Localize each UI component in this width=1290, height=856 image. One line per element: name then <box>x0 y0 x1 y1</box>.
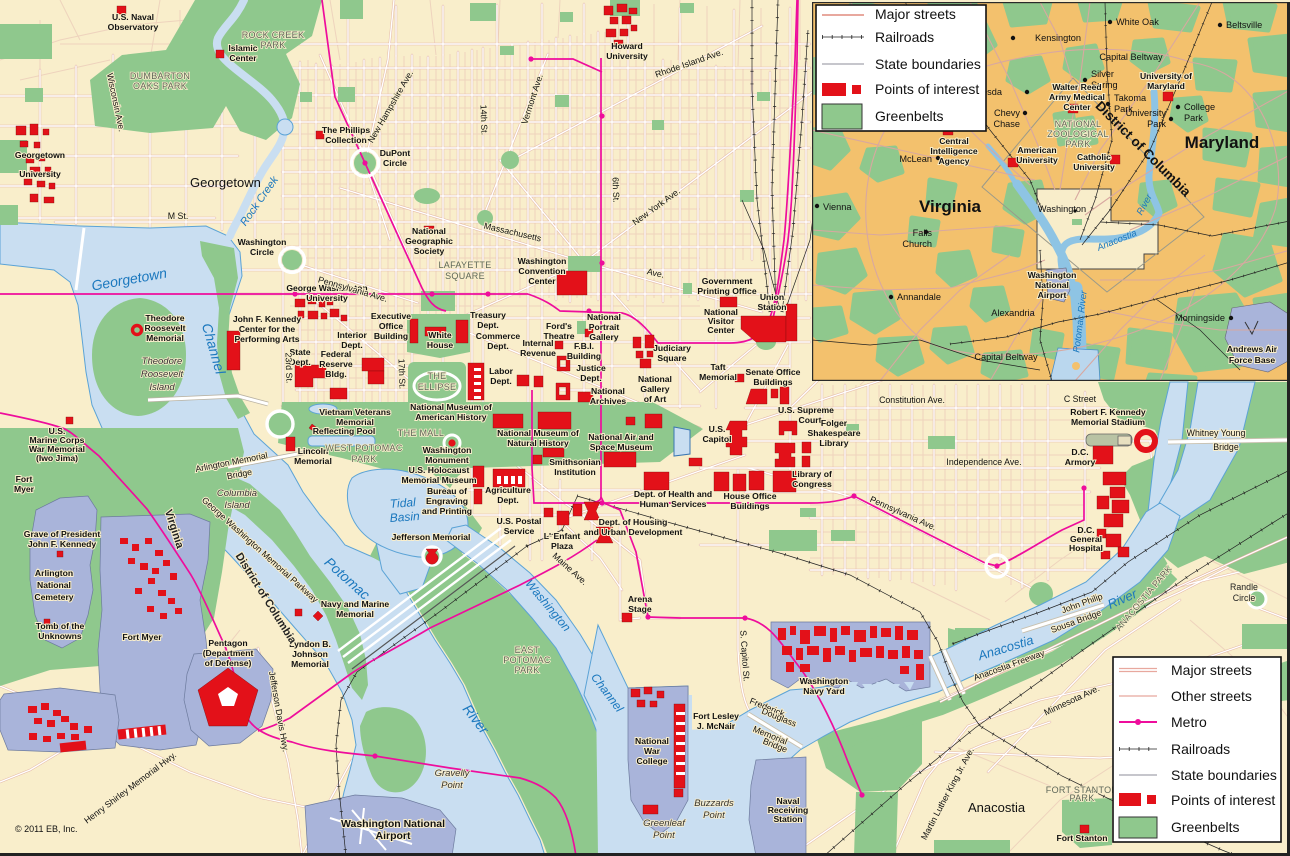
svg-text:Circle: Circle <box>1233 593 1256 603</box>
svg-text:Collection: Collection <box>325 135 367 145</box>
svg-text:Memorial Stadium: Memorial Stadium <box>1071 417 1145 427</box>
svg-text:Library of: Library of <box>792 469 832 479</box>
svg-text:Shakespeare: Shakespeare <box>807 428 860 438</box>
svg-text:Robert F. Kennedy: Robert F. Kennedy <box>1070 407 1146 417</box>
svg-text:of Art: of Art <box>644 394 667 404</box>
svg-text:Observatory: Observatory <box>108 22 159 32</box>
svg-text:Greenbelts: Greenbelts <box>1171 819 1239 835</box>
svg-text:Army Medical: Army Medical <box>1049 92 1105 102</box>
svg-text:Unknowns: Unknowns <box>38 631 82 641</box>
svg-text:Major streets: Major streets <box>875 6 956 22</box>
svg-text:Memorial: Memorial <box>291 659 329 669</box>
svg-text:Memorial: Memorial <box>699 372 737 382</box>
svg-text:Greenleaf: Greenleaf <box>643 818 686 829</box>
svg-text:Maryland: Maryland <box>1147 81 1185 91</box>
svg-text:Force Base: Force Base <box>1229 355 1276 365</box>
svg-text:Basin: Basin <box>389 509 420 525</box>
svg-text:Silver: Silver <box>1091 69 1114 79</box>
svg-text:Memorial: Memorial <box>146 333 184 343</box>
svg-text:University: University <box>19 169 61 179</box>
svg-text:PARK: PARK <box>260 40 285 50</box>
svg-text:Executive: Executive <box>371 311 411 321</box>
svg-text:Reserve: Reserve <box>319 359 353 369</box>
svg-text:and Urban Development: and Urban Development <box>584 527 683 537</box>
svg-text:Other streets: Other streets <box>1171 688 1252 704</box>
svg-text:Kensington: Kensington <box>1035 33 1081 43</box>
svg-text:Memorial: Memorial <box>336 609 374 619</box>
svg-text:Annandale: Annandale <box>897 292 941 302</box>
svg-text:Washington: Washington <box>1038 204 1086 214</box>
svg-text:Chevy: Chevy <box>994 108 1020 118</box>
svg-text:Buildings: Buildings <box>753 377 792 387</box>
svg-text:Center: Center <box>1063 102 1091 112</box>
svg-text:Washington: Washington <box>800 676 849 686</box>
svg-text:Pentagon: Pentagon <box>208 638 247 648</box>
svg-text:University: University <box>1126 108 1167 118</box>
svg-text:American: American <box>1017 145 1056 155</box>
svg-text:Agriculture: Agriculture <box>485 485 531 495</box>
svg-text:Andrews Air: Andrews Air <box>1227 344 1278 354</box>
svg-text:Memorial: Memorial <box>294 456 332 466</box>
svg-text:PARK: PARK <box>1065 139 1090 149</box>
svg-text:National Museum of: National Museum of <box>497 428 579 438</box>
svg-text:Point: Point <box>703 810 725 821</box>
svg-text:Theatre: Theatre <box>543 331 574 341</box>
svg-text:State boundaries: State boundaries <box>1171 767 1277 783</box>
svg-text:ZOOLOGICAL: ZOOLOGICAL <box>1047 129 1109 139</box>
svg-text:Island: Island <box>149 382 175 393</box>
svg-text:WEST POTOMAC: WEST POTOMAC <box>325 443 402 453</box>
svg-text:Service: Service <box>504 526 535 536</box>
svg-text:Dept.: Dept. <box>497 495 518 505</box>
svg-text:Arlington: Arlington <box>35 568 73 578</box>
svg-text:PARK: PARK <box>514 665 539 675</box>
svg-text:Performing Arts: Performing Arts <box>234 334 299 344</box>
svg-text:Natural History: Natural History <box>507 438 569 448</box>
svg-text:SQUARE: SQUARE <box>445 271 485 281</box>
svg-text:Roosevelt: Roosevelt <box>141 369 184 380</box>
svg-text:The Phillips: The Phillips <box>322 125 370 135</box>
svg-text:U.S. Holocaust: U.S. Holocaust <box>409 465 470 475</box>
svg-text:Building: Building <box>567 351 601 361</box>
svg-text:17th St.: 17th St. <box>396 359 407 390</box>
svg-text:Virginia: Virginia <box>919 197 982 216</box>
svg-text:Dept.: Dept. <box>490 376 511 386</box>
svg-text:Station: Station <box>773 814 802 824</box>
svg-text:National: National <box>37 580 71 590</box>
svg-text:Gallery: Gallery <box>640 384 669 394</box>
svg-text:Space Museum: Space Museum <box>590 442 653 452</box>
svg-text:Labor: Labor <box>489 366 514 376</box>
svg-text:EAST: EAST <box>515 645 540 655</box>
svg-text:Vietnam Veterans: Vietnam Veterans <box>319 407 391 417</box>
svg-text:Park: Park <box>1147 119 1166 129</box>
svg-text:University of: University of <box>1140 71 1192 81</box>
svg-text:Senate Office: Senate Office <box>746 367 801 377</box>
svg-text:Navy Yard: Navy Yard <box>803 686 844 696</box>
svg-text:John F. Kennedy: John F. Kennedy <box>233 314 301 324</box>
svg-text:McLean: McLean <box>899 154 932 164</box>
svg-text:Georgetown: Georgetown <box>190 175 261 190</box>
svg-text:National: National <box>635 736 669 746</box>
svg-text:D.C.: D.C. <box>1071 447 1088 457</box>
svg-text:White Oak: White Oak <box>1116 17 1159 27</box>
svg-text:War: War <box>644 746 661 756</box>
svg-text:National: National <box>638 374 672 384</box>
svg-text:Memorial Museum: Memorial Museum <box>402 475 477 485</box>
svg-text:Court: Court <box>799 415 822 425</box>
svg-text:John F. Kennedy: John F. Kennedy <box>28 539 96 549</box>
svg-text:Portrait: Portrait <box>589 322 620 332</box>
svg-text:Treasury: Treasury <box>470 310 506 320</box>
svg-text:Airport: Airport <box>376 830 412 842</box>
svg-text:Greenbelts: Greenbelts <box>875 108 943 124</box>
svg-text:NATIONAL: NATIONAL <box>1055 119 1102 129</box>
svg-text:Square: Square <box>657 353 686 363</box>
svg-text:Dept.: Dept. <box>487 341 508 351</box>
svg-text:Railroads: Railroads <box>1171 741 1230 757</box>
svg-text:LAFAYETTE: LAFAYETTE <box>438 260 491 270</box>
svg-text:Falls: Falls <box>913 228 933 238</box>
svg-text:Washington: Washington <box>423 445 472 455</box>
svg-text:Building: Building <box>374 331 408 341</box>
svg-text:Independence Ave.: Independence Ave. <box>946 457 1021 467</box>
svg-text:National: National <box>587 312 621 322</box>
svg-text:Fort Stanton: Fort Stanton <box>1056 833 1107 843</box>
svg-text:Catholic: Catholic <box>1077 152 1111 162</box>
svg-text:National Air and: National Air and <box>588 432 654 442</box>
svg-text:THE: THE <box>428 371 447 381</box>
svg-text:Dept. of Housing: Dept. of Housing <box>599 517 668 527</box>
svg-text:College: College <box>636 756 667 766</box>
svg-text:Buzzards: Buzzards <box>694 798 734 809</box>
svg-text:14th St.: 14th St. <box>478 105 489 136</box>
svg-text:Points of interest: Points of interest <box>1171 792 1275 808</box>
svg-text:Archives: Archives <box>590 396 627 406</box>
svg-text:Government: Government <box>702 276 753 286</box>
svg-text:Revenue: Revenue <box>520 348 556 358</box>
svg-text:U.S. Postal: U.S. Postal <box>497 516 542 526</box>
svg-text:OAKS PARK: OAKS PARK <box>133 81 187 91</box>
svg-text:Justice: Justice <box>576 363 606 373</box>
svg-text:National: National <box>1035 280 1069 290</box>
svg-text:Hospital: Hospital <box>1069 543 1103 553</box>
svg-text:Island: Island <box>224 500 250 511</box>
svg-text:House Office: House Office <box>723 491 776 501</box>
svg-text:Capital Beltway: Capital Beltway <box>1099 52 1163 62</box>
svg-text:Washington: Washington <box>518 256 567 266</box>
svg-text:Library: Library <box>819 438 848 448</box>
svg-text:Johnson: Johnson <box>292 649 328 659</box>
svg-text:Fort: Fort <box>16 474 33 484</box>
svg-text:Capitol: Capitol <box>702 434 731 444</box>
svg-text:DUMBARTON: DUMBARTON <box>130 71 190 81</box>
svg-text:White: White <box>428 330 452 340</box>
svg-text:Morningside: Morningside <box>1175 313 1225 323</box>
svg-text:Intelligence: Intelligence <box>930 146 977 156</box>
svg-text:PARK: PARK <box>1069 793 1094 803</box>
svg-text:Church: Church <box>902 239 932 249</box>
svg-text:Metro: Metro <box>1171 714 1207 730</box>
svg-text:POTOMAC: POTOMAC <box>503 655 551 665</box>
svg-text:Geographic: Geographic <box>405 236 453 246</box>
svg-text:Reflecting Pool: Reflecting Pool <box>313 426 376 436</box>
svg-text:Fort Myer: Fort Myer <box>122 632 162 642</box>
svg-text:Smithsonian: Smithsonian <box>549 457 601 467</box>
svg-text:© 2011 EB, Inc.: © 2011 EB, Inc. <box>15 824 78 834</box>
svg-text:Point: Point <box>441 780 463 791</box>
svg-text:J. McNair: J. McNair <box>697 721 736 731</box>
svg-text:Columbia: Columbia <box>217 488 257 499</box>
svg-text:U.S.: U.S. <box>709 424 726 434</box>
svg-text:Gravelly: Gravelly <box>435 768 471 779</box>
svg-text:Ford's: Ford's <box>546 321 572 331</box>
svg-text:College: College <box>1184 102 1215 112</box>
svg-text:Beltsville: Beltsville <box>1226 20 1262 30</box>
svg-text:Islamic: Islamic <box>228 43 257 53</box>
svg-text:Commerce: Commerce <box>476 331 521 341</box>
svg-text:Engraving: Engraving <box>426 496 468 506</box>
svg-text:Washington: Washington <box>1028 270 1077 280</box>
svg-text:Bridge: Bridge <box>1213 442 1239 452</box>
svg-text:Myer: Myer <box>14 484 35 494</box>
svg-text:Whitney Young: Whitney Young <box>1187 428 1246 438</box>
svg-text:Capital Beltway: Capital Beltway <box>974 352 1038 362</box>
svg-text:DuPont: DuPont <box>380 148 411 158</box>
svg-text:23rd St.: 23rd St. <box>283 352 294 383</box>
svg-text:Center: Center <box>707 325 735 335</box>
svg-text:Howard: Howard <box>611 41 643 51</box>
svg-text:Vienna: Vienna <box>823 202 852 212</box>
svg-text:THE MALL: THE MALL <box>398 428 444 438</box>
svg-text:Maryland: Maryland <box>1185 133 1260 152</box>
svg-text:Lincoln: Lincoln <box>298 446 329 456</box>
svg-text:6th St.: 6th St. <box>611 177 622 203</box>
svg-text:Agency: Agency <box>938 156 969 166</box>
svg-text:Monument: Monument <box>425 455 469 465</box>
svg-text:Office: Office <box>379 321 404 331</box>
svg-text:Takoma: Takoma <box>1114 93 1147 103</box>
svg-text:of Defense): of Defense) <box>205 658 252 668</box>
svg-text:Printing Office: Printing Office <box>697 286 756 296</box>
svg-text:Airport: Airport <box>1038 290 1067 300</box>
svg-text:State boundaries: State boundaries <box>875 56 981 72</box>
svg-text:University: University <box>1016 155 1058 165</box>
svg-text:Buildings: Buildings <box>730 501 769 511</box>
svg-text:Society: Society <box>414 246 445 256</box>
svg-text:Interior: Interior <box>337 330 367 340</box>
svg-text:Circle: Circle <box>383 158 407 168</box>
svg-text:Dept.: Dept. <box>477 320 498 330</box>
svg-text:Theodore: Theodore <box>145 313 184 323</box>
svg-text:University: University <box>606 51 648 61</box>
svg-text:Jefferson Memorial: Jefferson Memorial <box>392 532 471 542</box>
svg-text:Union: Union <box>760 292 784 302</box>
svg-text:ROCK CREEK: ROCK CREEK <box>242 30 305 40</box>
svg-text:Arena: Arena <box>628 594 653 604</box>
svg-text:Station: Station <box>757 302 786 312</box>
svg-text:U.S. Supreme: U.S. Supreme <box>778 405 834 415</box>
svg-text:American History: American History <box>415 412 486 422</box>
svg-text:Congress: Congress <box>792 479 832 489</box>
svg-text:Folger: Folger <box>821 418 848 428</box>
svg-text:Railroads: Railroads <box>875 29 934 45</box>
svg-text:National: National <box>591 386 625 396</box>
svg-text:Navy and Marine: Navy and Marine <box>321 599 390 609</box>
svg-text:and Printing: and Printing <box>422 506 472 516</box>
svg-text:Washington: Washington <box>238 237 287 247</box>
svg-text:Circle: Circle <box>250 247 274 257</box>
svg-text:U.S. Naval: U.S. Naval <box>112 12 154 22</box>
svg-text:Alexandria: Alexandria <box>991 308 1035 318</box>
svg-text:ELLIPSE: ELLIPSE <box>418 382 457 392</box>
svg-text:Fort Lesley: Fort Lesley <box>693 711 739 721</box>
svg-text:Center for the: Center for the <box>239 324 296 334</box>
svg-text:L' Enfant: L' Enfant <box>544 531 581 541</box>
svg-text:Roosevelt: Roosevelt <box>144 323 185 333</box>
svg-text:Armory: Armory <box>1065 457 1096 467</box>
svg-text:Center: Center <box>528 276 556 286</box>
svg-text:Theodore: Theodore <box>142 356 183 367</box>
svg-text:Chase: Chase <box>993 119 1020 129</box>
svg-text:Grave of President: Grave of President <box>24 529 101 539</box>
svg-text:Tomb of the: Tomb of the <box>36 621 85 631</box>
svg-text:(Iwo Jima): (Iwo Jima) <box>36 453 78 463</box>
svg-text:Bldg.: Bldg. <box>325 369 346 379</box>
svg-text:Center: Center <box>229 53 257 63</box>
svg-text:Convention: Convention <box>518 266 565 276</box>
svg-text:(Department: (Department <box>203 648 254 658</box>
svg-text:Park: Park <box>1184 113 1203 123</box>
svg-text:Federal: Federal <box>321 349 352 359</box>
svg-text:Major streets: Major streets <box>1171 662 1252 678</box>
svg-text:C Street: C Street <box>1064 394 1097 404</box>
svg-text:M St.: M St. <box>168 211 189 221</box>
svg-text:Stage: Stage <box>628 604 652 614</box>
svg-text:Human Services: Human Services <box>640 499 707 509</box>
svg-text:Plaza: Plaza <box>551 541 573 551</box>
svg-text:F.B.I.: F.B.I. <box>574 341 594 351</box>
svg-text:University: University <box>1073 162 1115 172</box>
svg-text:PARK: PARK <box>351 454 376 464</box>
svg-text:National: National <box>412 226 446 236</box>
svg-text:Central: Central <box>939 136 969 146</box>
svg-text:Bureau of: Bureau of <box>427 486 467 496</box>
svg-text:Dept.: Dept. <box>580 373 601 383</box>
svg-text:Institution: Institution <box>554 467 596 477</box>
svg-text:Randle: Randle <box>1230 582 1258 592</box>
svg-text:Georgetown: Georgetown <box>15 150 65 160</box>
svg-text:Anacostia: Anacostia <box>968 800 1026 815</box>
svg-text:Dept. of Health and: Dept. of Health and <box>634 489 712 499</box>
svg-text:Taft: Taft <box>710 362 725 372</box>
svg-text:Gallery: Gallery <box>589 332 618 342</box>
svg-text:University: University <box>306 293 348 303</box>
svg-text:Judiciary: Judiciary <box>653 343 691 353</box>
svg-text:Walter Reed: Walter Reed <box>1052 82 1101 92</box>
svg-text:Cemetery: Cemetery <box>34 592 73 602</box>
svg-text:House: House <box>427 340 453 350</box>
svg-text:Point: Point <box>653 830 675 841</box>
svg-text:Constitution Ave.: Constitution Ave. <box>879 395 945 405</box>
svg-text:National Museum of: National Museum of <box>410 402 492 412</box>
svg-text:Washington National: Washington National <box>341 818 445 830</box>
svg-text:Points of interest: Points of interest <box>875 81 979 97</box>
